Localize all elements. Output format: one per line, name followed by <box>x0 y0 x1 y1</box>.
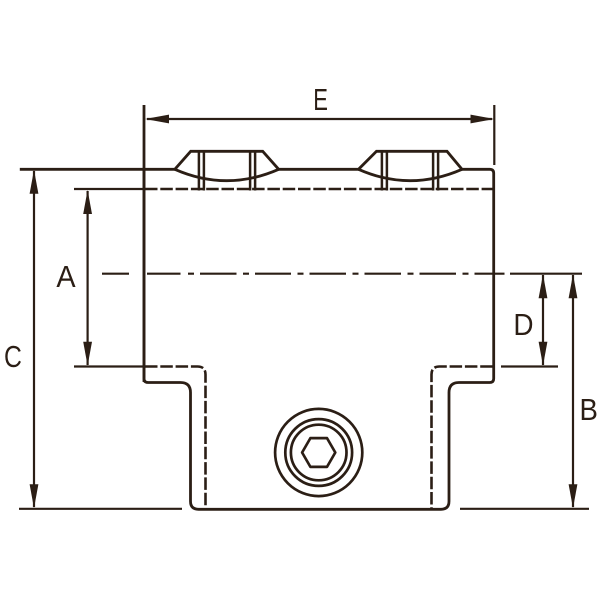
svg-text:C: C <box>4 339 22 373</box>
svg-text:E: E <box>313 83 328 118</box>
svg-text:D: D <box>513 308 533 343</box>
svg-text:A: A <box>56 260 75 294</box>
svg-text:B: B <box>580 392 598 427</box>
